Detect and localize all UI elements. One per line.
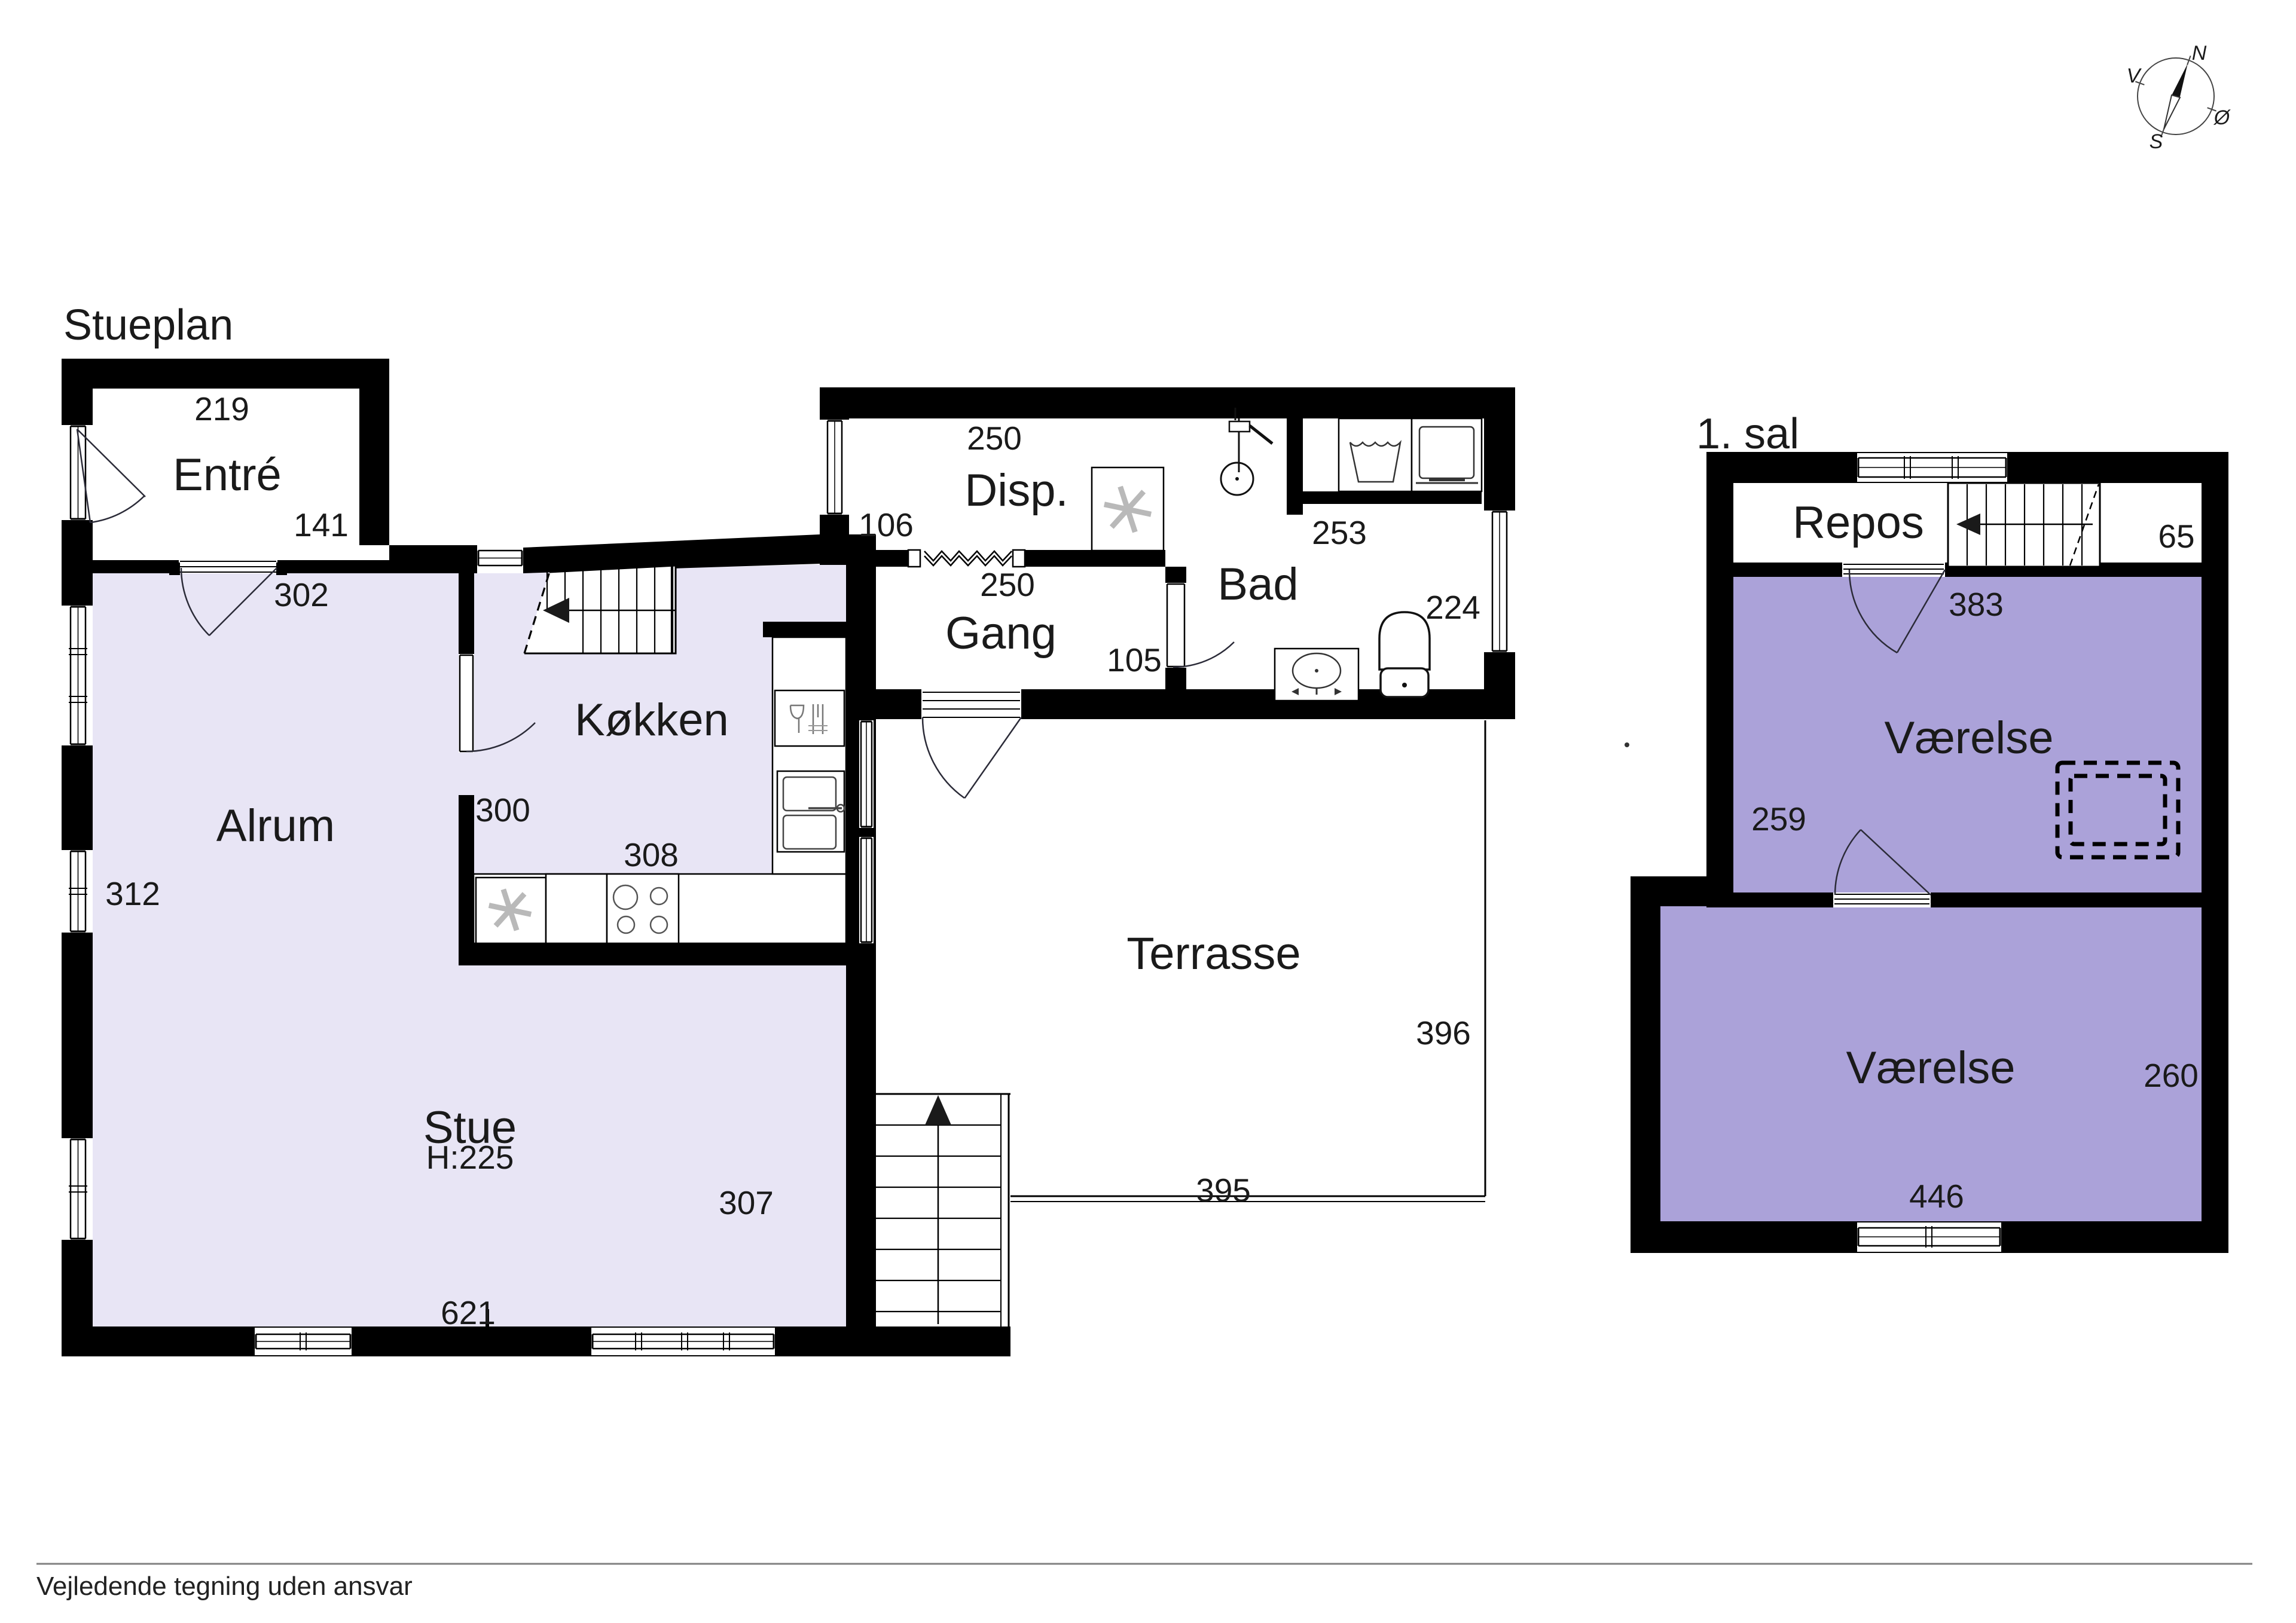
svg-text:S: S — [2150, 130, 2163, 153]
svg-text:106: 106 — [859, 506, 914, 543]
svg-text:Entré: Entré — [173, 450, 282, 500]
svg-text:250: 250 — [967, 420, 1022, 457]
svg-text:Stueplan: Stueplan — [63, 301, 233, 349]
svg-text:Køkken: Køkken — [575, 695, 729, 745]
svg-text:260: 260 — [2144, 1057, 2199, 1094]
svg-text:253: 253 — [1312, 514, 1367, 551]
svg-text:219: 219 — [194, 390, 249, 427]
svg-text:307: 307 — [719, 1184, 774, 1221]
svg-text:V: V — [2127, 65, 2142, 87]
svg-text:446: 446 — [1909, 1178, 1964, 1215]
svg-text:621: 621 — [441, 1294, 496, 1331]
svg-text:302: 302 — [274, 576, 329, 613]
svg-text:Terrasse: Terrasse — [1126, 928, 1300, 979]
svg-text:H:225: H:225 — [426, 1139, 514, 1176]
svg-text:105: 105 — [1107, 641, 1162, 678]
svg-text:Værelse: Værelse — [1846, 1043, 2016, 1093]
svg-text:Disp.: Disp. — [964, 465, 1068, 516]
svg-text:Bad: Bad — [1217, 559, 1298, 610]
svg-text:Repos: Repos — [1793, 497, 1924, 548]
svg-text:Værelse: Værelse — [1885, 713, 2054, 763]
svg-text:308: 308 — [624, 836, 679, 873]
svg-text:Alrum: Alrum — [216, 800, 335, 851]
svg-text:224: 224 — [1425, 589, 1480, 626]
svg-text:1. sal: 1. sal — [1696, 410, 1799, 458]
svg-text:Gang: Gang — [945, 608, 1057, 659]
svg-text:65: 65 — [2158, 518, 2194, 555]
svg-text:250: 250 — [980, 566, 1035, 603]
svg-text:N: N — [2192, 42, 2207, 65]
svg-text:Ø: Ø — [2213, 106, 2231, 129]
svg-text:259: 259 — [1751, 800, 1806, 838]
svg-text:141: 141 — [294, 506, 349, 543]
svg-text:396: 396 — [1416, 1014, 1471, 1052]
svg-text:Vejledende tegning uden ansvar: Vejledende tegning uden ansvar — [36, 1572, 413, 1601]
svg-text:300: 300 — [475, 791, 530, 829]
svg-text:395: 395 — [1196, 1172, 1251, 1209]
svg-text:312: 312 — [105, 875, 160, 912]
svg-text:383: 383 — [1949, 586, 2004, 623]
